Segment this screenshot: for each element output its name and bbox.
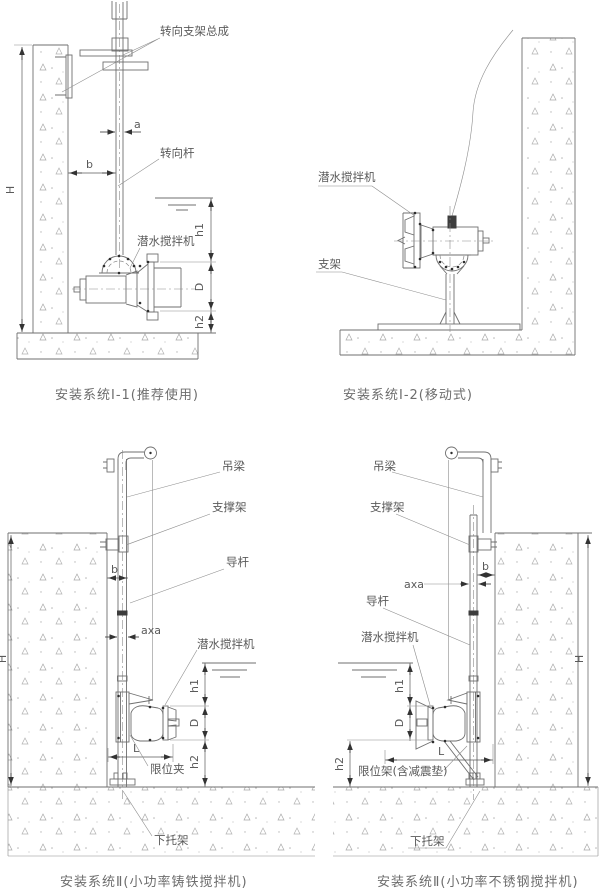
- d3-label-hanger-beam: 吊梁: [222, 459, 245, 473]
- d3-dim-L-label: L: [133, 742, 140, 755]
- d1-dimension-chain-right: h1 D h2: [160, 198, 216, 333]
- d4-hanger-beam: [446, 447, 503, 472]
- d2-label-stand: 支架: [318, 257, 341, 271]
- d1-dim-H-label: H: [4, 186, 17, 194]
- d1-dimension-b: b: [68, 158, 116, 173]
- d1-dim-a-label: a: [134, 118, 141, 131]
- d1-dim-h1-label: h1: [193, 223, 206, 237]
- diagram-2-installation-system-I-2: 潜水搅拌机 支架 安装系统Ⅰ-2(移动式): [316, 30, 575, 403]
- d1-water-level-symbol: [155, 198, 213, 210]
- d3-hanger-beam: [103, 447, 157, 472]
- d1-label-steering-rod: 转向杆: [160, 146, 195, 160]
- d4-dim-h2-label: h2: [333, 757, 346, 771]
- d2-labels: 潜水搅拌机 支架: [316, 170, 446, 300]
- d1-dimension-a: a: [100, 118, 141, 132]
- d4-water-level-symbol: [338, 663, 413, 677]
- d3-label-guide-rod: 导杆: [226, 555, 249, 569]
- d3-label-support-frame: 支撑架: [212, 500, 247, 514]
- d4-dim-b-label: b: [482, 560, 489, 573]
- d1-label-submersible-mixer: 潜水搅拌机: [137, 234, 195, 248]
- d4-label-support-frame: 支撑架: [370, 500, 405, 514]
- d1-wall: [33, 45, 68, 333]
- d4-caption: 安装系统Ⅱ(小功率不锈钢搅拌机): [377, 874, 579, 890]
- d4-label-submersible-mixer: 潜水搅拌机: [361, 630, 419, 644]
- d2-label-submersible-mixer: 潜水搅拌机: [318, 170, 376, 184]
- d4-rail-foot: [466, 773, 484, 785]
- d3-dim-h2-label: h2: [188, 755, 201, 769]
- d3-dim-H-label: H: [0, 655, 9, 663]
- d4-dim-axa-label: axa: [404, 578, 424, 591]
- d3-submersible-mixer-drawing: [116, 692, 179, 742]
- d1-floor: [17, 333, 216, 359]
- d4-guide-rod: [469, 459, 491, 800]
- d4-dim-H-label: H: [573, 655, 586, 663]
- d3-label-limit-clamp: 限位夹: [150, 762, 185, 776]
- d3-dim-b-label: b: [111, 563, 118, 576]
- d1-steering-rod: [112, 1, 127, 268]
- d1-steering-bracket-assembly: [55, 38, 148, 98]
- installation-diagrams-svg: H a b h1 D h2: [0, 0, 608, 895]
- d1-label-steering-bracket-assembly: 转向支架总成: [160, 24, 229, 38]
- d4-dimension-axa: axa: [404, 578, 491, 591]
- d4-dim-D-label: D: [393, 719, 406, 727]
- d1-dim-b-label: b: [86, 158, 93, 171]
- d4-floor: [333, 787, 598, 857]
- drawing-sheet: H a b h1 D h2: [0, 0, 608, 895]
- d4-label-limit-frame: 限位架(含减震垫): [358, 764, 447, 778]
- d3-label-lower-bracket: 下托架: [154, 833, 189, 847]
- d4-label-lower-bracket: 下托架: [410, 834, 445, 848]
- d3-dim-h1-label: h1: [188, 679, 201, 693]
- d4-dimension-b: b: [477, 560, 495, 575]
- d1-dim-D-label: D: [193, 283, 206, 291]
- d3-dimension-b: b: [107, 563, 128, 578]
- d3-dim-axa-label: axa: [141, 624, 161, 637]
- diagram-1-installation-system-I-1: H a b h1 D h2: [4, 1, 229, 403]
- d4-label-guide-rod: 导杆: [366, 594, 389, 608]
- d1-submersible-mixer-drawing: [72, 254, 196, 320]
- d4-dim-L-label: L: [438, 745, 445, 758]
- d3-guide-rod: [118, 450, 128, 800]
- diagram-3-installation-system-II-cast-iron: H b axa L: [0, 447, 315, 890]
- d3-dim-D-label: D: [188, 719, 201, 727]
- d1-dimension-H: H: [4, 45, 32, 332]
- d3-caption: 安装系统Ⅱ(小功率铸铁搅拌机): [60, 874, 248, 890]
- d2-caption: 安装系统Ⅰ-2(移动式): [343, 388, 473, 403]
- d1-caption: 安装系统Ⅰ-1(推荐使用): [55, 387, 199, 403]
- diagram-4-installation-system-II-stainless: H b axa L: [333, 447, 598, 890]
- d3-label-submersible-mixer: 潜水搅拌机: [197, 637, 255, 651]
- d3-wall: [8, 533, 107, 787]
- d1-dim-h2-label: h2: [193, 315, 206, 329]
- d2-submersible-mixer-drawing: [394, 212, 494, 274]
- d4-dim-h1-label: h1: [393, 679, 406, 693]
- d3-dimension-axa: axa: [105, 624, 161, 637]
- d4-dimension-h2: h2: [333, 741, 350, 787]
- d2-power-cable: [452, 30, 513, 216]
- d4-label-hanger-beam: 吊梁: [373, 459, 396, 473]
- d3-water-level-symbol: [202, 663, 256, 677]
